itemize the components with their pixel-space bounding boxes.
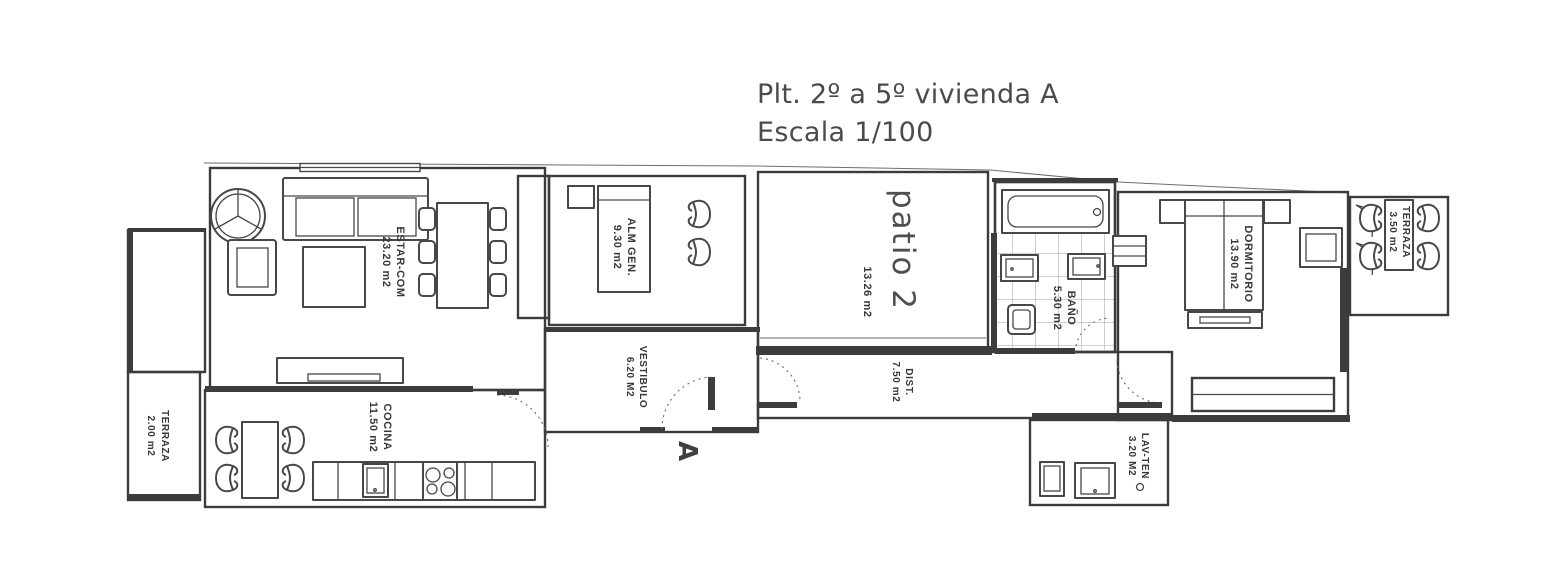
drain-point bbox=[1137, 484, 1144, 491]
room-patio bbox=[756, 172, 992, 355]
label-estar-area: 23.20 m2 bbox=[380, 236, 392, 287]
coffee-table bbox=[303, 247, 365, 307]
bed-bench bbox=[1188, 312, 1262, 328]
bathtub bbox=[1002, 190, 1109, 233]
label-almgen-area: 9.30 m2 bbox=[611, 225, 623, 270]
label-patio-name: patio 2 bbox=[885, 189, 921, 311]
dining-table bbox=[419, 203, 506, 308]
kitchen-table bbox=[242, 422, 278, 498]
nightstand-right bbox=[1264, 200, 1290, 223]
toilet bbox=[1008, 305, 1035, 334]
dist-door-leaf bbox=[757, 402, 797, 408]
kitchen-door-arc bbox=[496, 395, 548, 447]
dorm-door-arc bbox=[1117, 360, 1160, 403]
kitchen-hob bbox=[423, 462, 457, 500]
chairs-alm-gen bbox=[689, 201, 710, 266]
entry-door-leaf bbox=[708, 377, 715, 410]
label-dormitorio-area: 13.90 m2 bbox=[1228, 238, 1240, 289]
section-marker-a: A bbox=[672, 441, 702, 461]
dist-door-arc bbox=[760, 358, 800, 402]
deck-strip bbox=[128, 228, 206, 372]
wardrobe-dormitorio bbox=[1192, 378, 1334, 411]
nightstand-left bbox=[1160, 200, 1185, 223]
label-patio-area: 13.26 m2 bbox=[861, 266, 873, 317]
label-lavten-name: LAV-TEN bbox=[1139, 433, 1150, 479]
label-bano-area: 5.30 m2 bbox=[1051, 286, 1063, 331]
laundry-appliance bbox=[1040, 462, 1064, 496]
label-dist-name: DIST. bbox=[903, 368, 914, 395]
sink-1 bbox=[1001, 255, 1038, 281]
label-lavten-area: 3.20 M2 bbox=[1126, 436, 1137, 476]
drawing-title-block: Plt. 2º a 5º vivienda A Escala 1/100 bbox=[757, 76, 1059, 152]
sideboard bbox=[277, 358, 403, 383]
ceiling-fan bbox=[211, 189, 265, 243]
storage-box bbox=[568, 186, 594, 208]
label-terraza-right-area: 3.50 m2 bbox=[1387, 212, 1398, 253]
kitchen-door-leaf bbox=[497, 389, 519, 395]
label-almgen-name: ALM GEN. bbox=[625, 218, 637, 277]
label-cocina-name: COCINA bbox=[381, 404, 393, 451]
shelf-unit bbox=[1113, 236, 1146, 266]
room-vestibulo bbox=[545, 330, 758, 432]
armchair bbox=[228, 240, 276, 295]
washer bbox=[1075, 463, 1115, 498]
drawing-title: Plt. 2º a 5º vivienda A bbox=[757, 76, 1059, 114]
drawing-scale: Escala 1/100 bbox=[757, 114, 1059, 152]
label-vestibulo-name: VESTIBULO bbox=[637, 346, 648, 409]
label-terraza-right-name: TERRAZA bbox=[1400, 206, 1411, 258]
label-cocina-area: 11.50 m2 bbox=[367, 402, 379, 453]
label-terraza-left-area: 2.00 m2 bbox=[145, 416, 156, 457]
label-dist-area: 7.50 m2 bbox=[890, 362, 901, 403]
label-vestibulo-area: 6.20 M2 bbox=[624, 357, 635, 397]
label-estar-name: ESTAR-COM bbox=[394, 226, 406, 297]
label-terraza-left-name: TERRAZA bbox=[159, 410, 170, 462]
single-bed bbox=[598, 186, 650, 292]
room-dist bbox=[758, 352, 1172, 418]
kitchen-sink bbox=[363, 464, 388, 497]
window-dormitorio bbox=[1300, 228, 1342, 267]
dorm-door-leaf bbox=[1117, 402, 1162, 408]
label-dormitorio-name: DORMITORIO bbox=[1242, 225, 1254, 302]
label-bano-name: BAÑO bbox=[1065, 291, 1078, 326]
window-estar-top bbox=[300, 164, 420, 172]
sink-2 bbox=[1068, 254, 1105, 279]
entry-door-arc bbox=[662, 377, 711, 429]
